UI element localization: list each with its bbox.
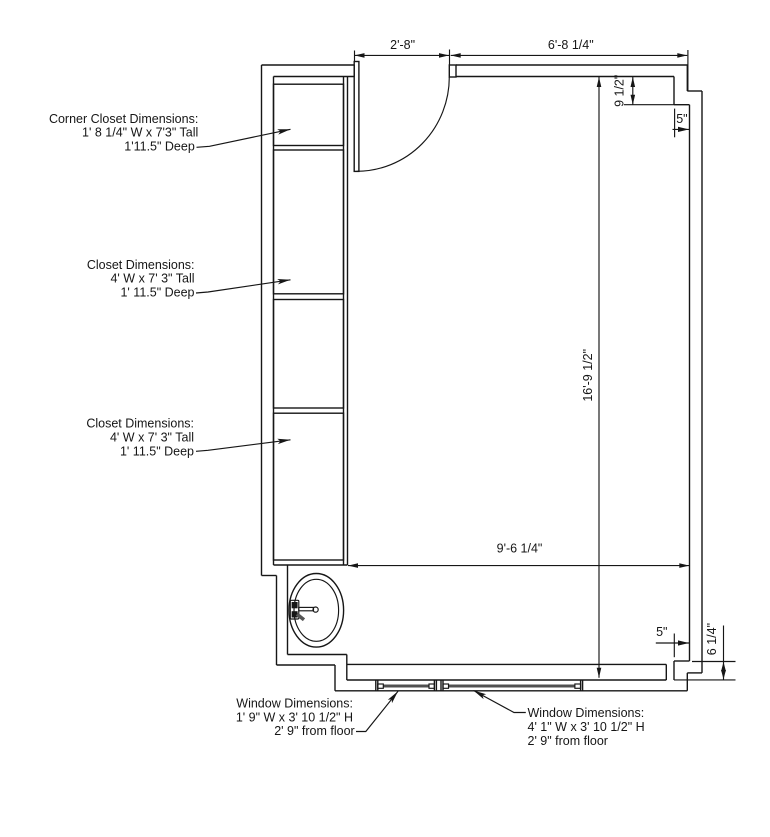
svg-text:6 1/4": 6 1/4" — [705, 623, 719, 655]
svg-text:9 1/2": 9 1/2" — [613, 75, 627, 107]
svg-text:1' 8 1/4" W x 7'3" Tall: 1' 8 1/4" W x 7'3" Tall — [82, 126, 198, 140]
svg-text:4' W x 7' 3" Tall: 4' W x 7' 3" Tall — [110, 431, 194, 445]
svg-text:Closet Dimensions:: Closet Dimensions: — [86, 417, 194, 431]
svg-text:Window Dimensions:: Window Dimensions: — [528, 706, 645, 720]
svg-text:16'-9 1/2": 16'-9 1/2" — [581, 349, 595, 402]
svg-text:2'-8": 2'-8" — [390, 38, 415, 52]
svg-text:1' 9" W x 3' 10 1/2" H: 1' 9" W x 3' 10 1/2" H — [236, 710, 353, 724]
svg-text:Closet Dimensions:: Closet Dimensions: — [87, 258, 195, 272]
svg-text:5": 5" — [656, 625, 667, 639]
svg-text:Corner Closet Dimensions:: Corner Closet Dimensions: — [49, 112, 198, 126]
svg-text:2' 9" from floor: 2' 9" from floor — [528, 734, 608, 748]
svg-text:9'-6 1/4": 9'-6 1/4" — [497, 542, 543, 556]
svg-text:1'11.5" Deep: 1'11.5" Deep — [124, 140, 195, 154]
svg-text:5": 5" — [676, 112, 687, 126]
svg-text:4' W x 7' 3" Tall: 4' W x 7' 3" Tall — [110, 272, 194, 286]
svg-text:2' 9" from floor: 2' 9" from floor — [274, 724, 354, 738]
svg-text:6'-8 1/4": 6'-8 1/4" — [548, 38, 594, 52]
svg-text:4' 1" W x 3' 10 1/2" H: 4' 1" W x 3' 10 1/2" H — [528, 720, 645, 734]
svg-text:Window Dimensions:: Window Dimensions: — [236, 697, 353, 711]
svg-text:1' 11.5" Deep: 1' 11.5" Deep — [120, 286, 194, 300]
svg-text:1' 11.5" Deep: 1' 11.5" Deep — [120, 444, 194, 458]
